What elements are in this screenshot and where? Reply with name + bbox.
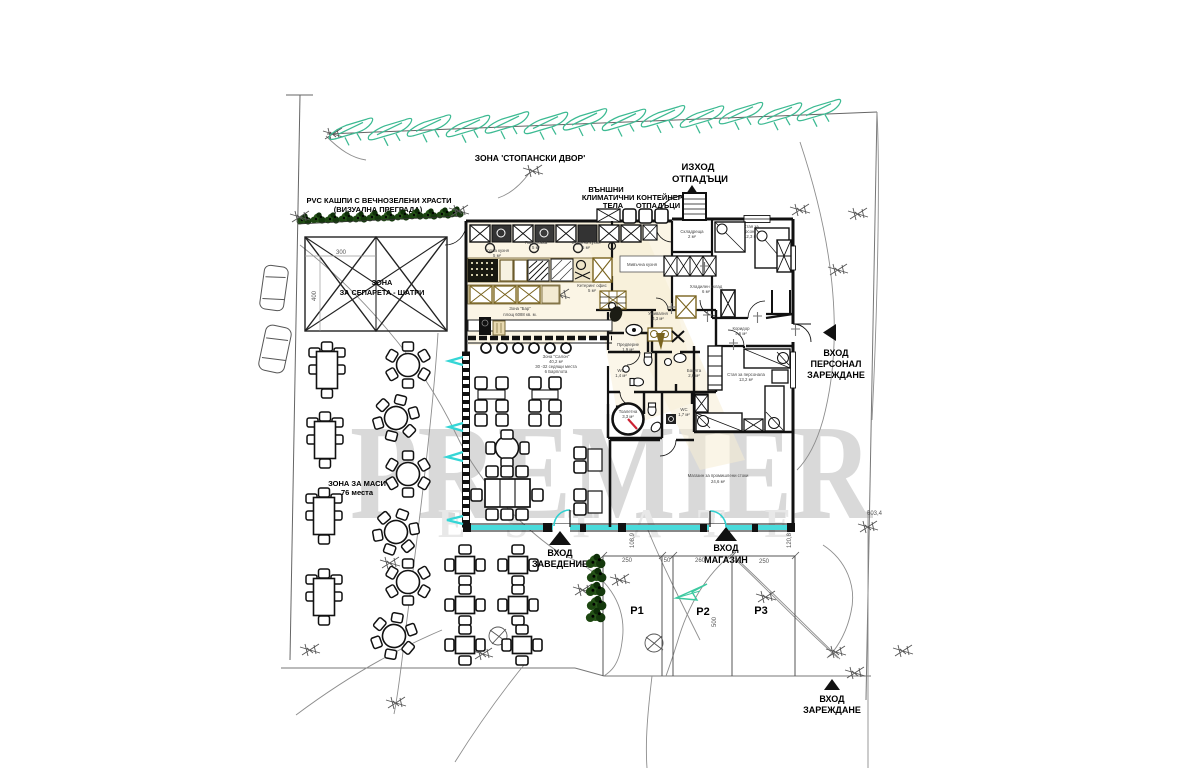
svg-text:13,2 м²: 13,2 м² [739, 377, 754, 382]
svg-text:2 м²: 2 м² [688, 234, 697, 239]
svg-text:1,4 м²: 1,4 м² [615, 373, 627, 378]
svg-text:5 м²: 5 м² [493, 253, 502, 258]
svg-text:P1: P1 [630, 605, 643, 617]
svg-text:24,6 м²: 24,6 м² [711, 479, 726, 484]
svg-text:250: 250 [759, 559, 770, 565]
svg-text:120,8: 120,8 [787, 532, 793, 548]
svg-text:5 м²: 5 м² [588, 288, 597, 293]
svg-text:ЗАРЕЖДАНЕ: ЗАРЕЖДАНЕ [803, 705, 861, 715]
svg-text:ЗОНА ЗА МАСИ: ЗОНА ЗА МАСИ [328, 479, 386, 488]
svg-text:1,9 м²: 1,9 м² [622, 347, 634, 352]
svg-text:ВХОД: ВХОД [819, 694, 845, 704]
svg-text:108,9: 108,9 [630, 532, 636, 548]
svg-text:260: 260 [695, 558, 706, 564]
svg-text:250: 250 [622, 558, 633, 564]
svg-text:5 м²: 5 м² [582, 245, 591, 250]
svg-text:76 места: 76 места [341, 488, 374, 497]
svg-text:ЗОНА 'СТОПАНСКИ ДВОР': ЗОНА 'СТОПАНСКИ ДВОР' [475, 153, 585, 163]
svg-text:4,6 м²: 4,6 м² [735, 331, 747, 336]
svg-text:ИЗХОД: ИЗХОД [682, 162, 715, 173]
svg-text:50: 50 [664, 558, 671, 564]
svg-text:400: 400 [312, 290, 318, 301]
svg-text:ОТПАДЪЦИ: ОТПАДЪЦИ [672, 174, 728, 185]
svg-text:Зона "Бар": Зона "Бар" [509, 306, 531, 311]
svg-text:ЗОНА: ЗОНА [372, 278, 393, 287]
svg-text:ВХОД: ВХОД [547, 548, 573, 558]
svg-text:P3: P3 [754, 605, 767, 617]
svg-text:1,7 м²: 1,7 м² [678, 412, 690, 417]
svg-text:ЗА СЕПАРЕТА - ШАТРИ: ЗА СЕПАРЕТА - ШАТРИ [340, 288, 425, 297]
svg-text:5 м²: 5 м² [532, 245, 541, 250]
svg-text:Мивъчна кухня: Мивъчна кухня [627, 262, 658, 267]
svg-text:300: 300 [336, 250, 347, 256]
svg-text:3,3 м²: 3,3 м² [622, 414, 634, 419]
svg-text:2,6 м²: 2,6 м² [688, 373, 700, 378]
svg-text:603,4: 603,4 [867, 511, 883, 517]
svg-text:500: 500 [712, 616, 718, 627]
svg-text:Магазин за промишлени стоки: Магазин за промишлени стоки [688, 473, 749, 478]
svg-text:ПЕРСОНАЛ: ПЕРСОНАЛ [811, 359, 862, 369]
svg-text:ЗАРЕЖДАНЕ: ЗАРЕЖДАНЕ [807, 370, 865, 380]
svg-text:4,3 м²: 4,3 м² [652, 316, 664, 321]
svg-text:ЗАВЕДЕНИЕ: ЗАВЕДЕНИЕ [532, 559, 588, 569]
svg-text:PVC КАШПИ С ВЕЧНОЗЕЛЕНИ ХРАСТИ: PVC КАШПИ С ВЕЧНОЗЕЛЕНИ ХРАСТИ [307, 196, 452, 205]
svg-text:6 м²: 6 м² [702, 289, 711, 294]
svg-text:6 Барплота: 6 Барплота [545, 369, 568, 374]
svg-text:ВХОД: ВХОД [713, 543, 739, 553]
svg-text:площ 6088 кв. м.: площ 6088 кв. м. [503, 312, 536, 317]
svg-text:ВХОД: ВХОД [823, 348, 849, 358]
svg-text:P2: P2 [696, 606, 709, 618]
